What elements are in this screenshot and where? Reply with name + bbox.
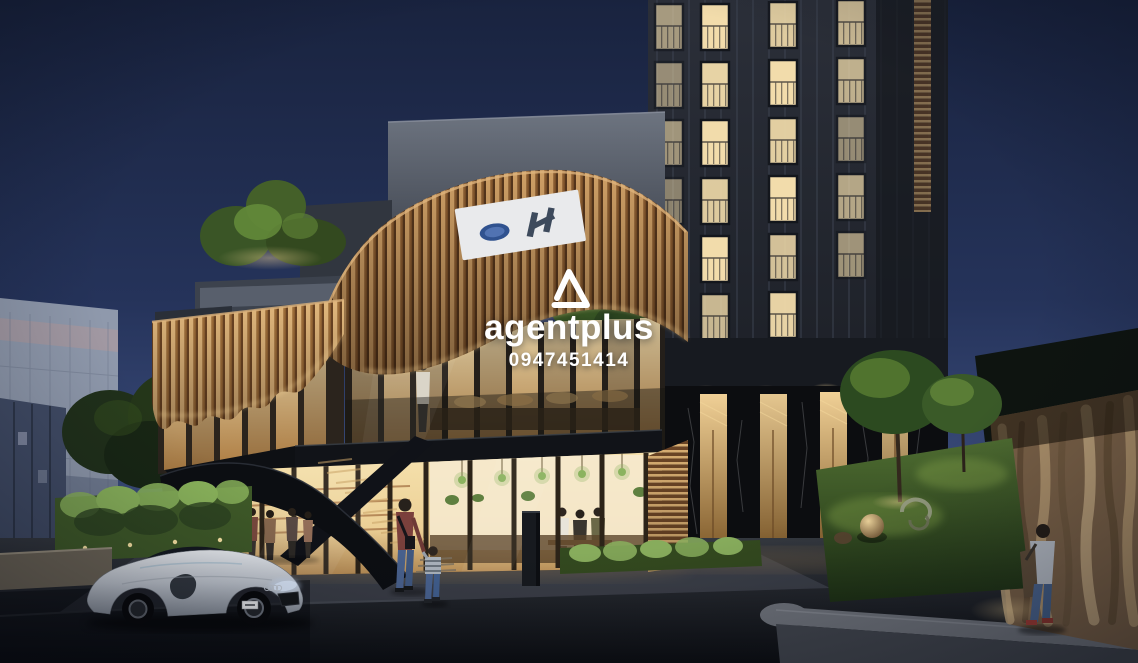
dusk-building-scene bbox=[0, 0, 1138, 663]
vignette-overlay bbox=[0, 0, 1138, 663]
architectural-render-image: agentplus 0947451414 bbox=[0, 0, 1138, 663]
